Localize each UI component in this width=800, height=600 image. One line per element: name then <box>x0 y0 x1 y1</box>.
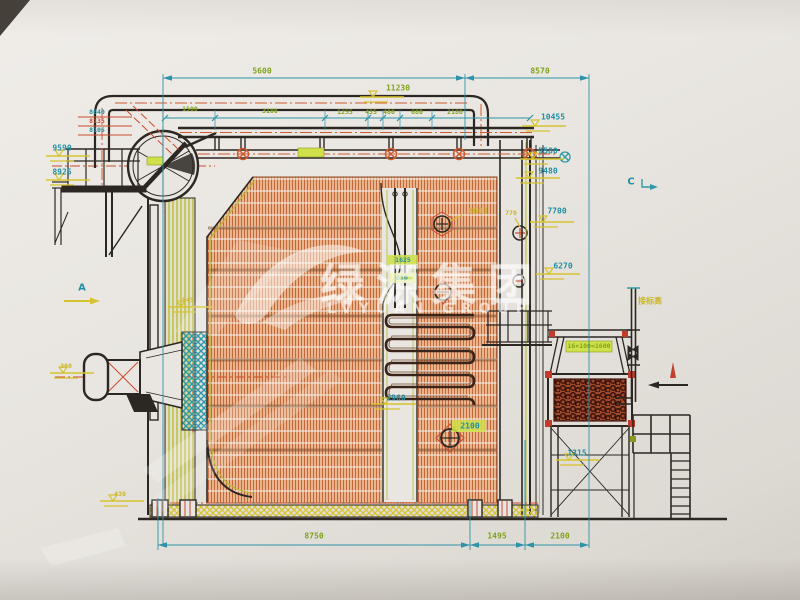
photo-corner-shadow <box>0 0 30 36</box>
watermark-english: LVYUAN GROUP <box>327 301 533 317</box>
watermark: 绿源集团 LVYUAN GROUP <box>0 0 800 600</box>
photo-of-boiler-drawing: 5600857011230150031001255435480680218010… <box>0 0 800 600</box>
